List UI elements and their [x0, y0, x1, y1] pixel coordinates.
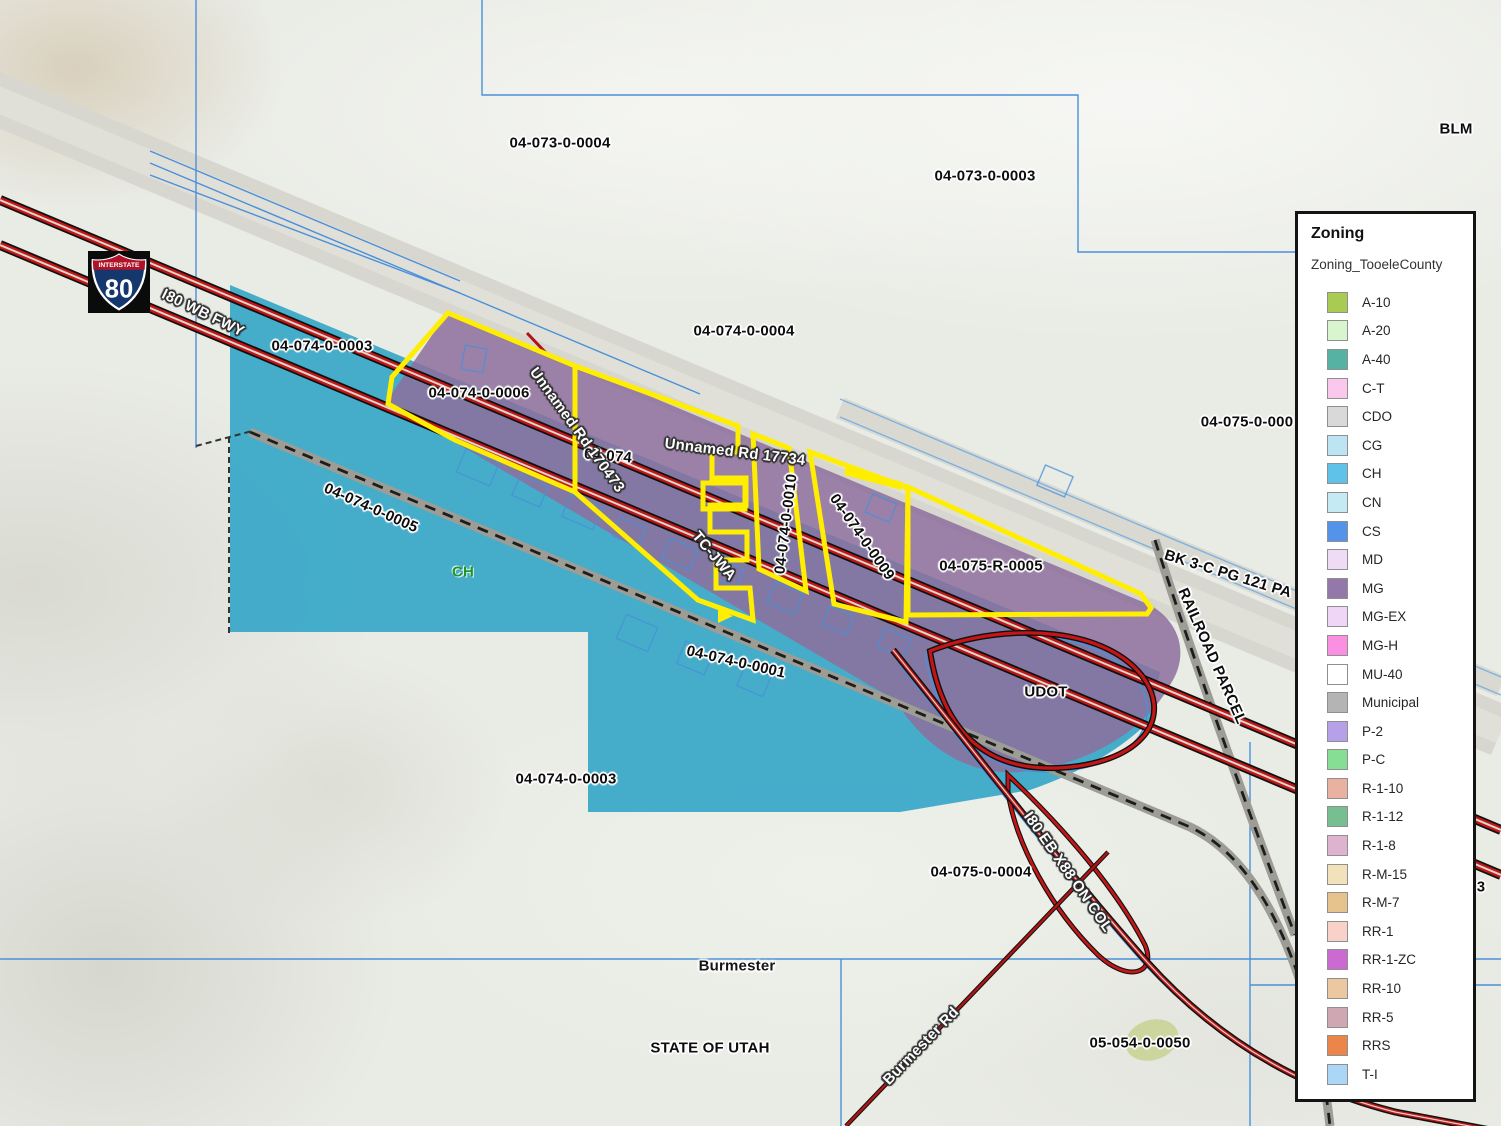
- legend-item-p-c: P-C: [1298, 746, 1473, 775]
- legend-swatch: [1327, 349, 1348, 370]
- legend-swatch: [1327, 521, 1348, 542]
- legend-item-label: MG-H: [1362, 638, 1398, 653]
- legend-swatch: [1327, 749, 1348, 770]
- map-feature-layer: [0, 0, 1501, 1126]
- legend-layer-name: Zoning_TooeleCounty: [1311, 257, 1473, 272]
- legend-swatch: [1327, 606, 1348, 627]
- legend-item-label: CS: [1362, 524, 1381, 539]
- legend-swatch: [1327, 864, 1348, 885]
- legend-item-label: CN: [1362, 495, 1382, 510]
- legend-item-mg-h: MG-H: [1298, 631, 1473, 660]
- legend-item-label: Municipal: [1362, 695, 1419, 710]
- legend-swatch: [1327, 635, 1348, 656]
- legend-item-rr-1-zc: RR-1-ZC: [1298, 946, 1473, 975]
- legend-swatch: [1327, 664, 1348, 685]
- legend-item-r-1-10: R-1-10: [1298, 774, 1473, 803]
- legend-item-cs: CS: [1298, 517, 1473, 546]
- legend-swatch: [1327, 463, 1348, 484]
- legend-item-a-20: A-20: [1298, 317, 1473, 346]
- legend-item-municipal: Municipal: [1298, 688, 1473, 717]
- legend-swatch: [1327, 921, 1348, 942]
- legend-item-label: CH: [1362, 466, 1382, 481]
- legend-item-label: P-2: [1362, 724, 1383, 739]
- legend-item-label: RR-5: [1362, 1010, 1394, 1025]
- legend-swatch: [1327, 978, 1348, 999]
- legend-swatch: [1327, 892, 1348, 913]
- legend-item-r-m-15: R-M-15: [1298, 860, 1473, 889]
- legend-item-a-10: A-10: [1298, 288, 1473, 317]
- legend-swatch: [1327, 378, 1348, 399]
- legend-item-label: A-40: [1362, 352, 1391, 367]
- legend-item-label: RR-1: [1362, 924, 1394, 939]
- legend-swatch: [1327, 1064, 1348, 1085]
- legend-item-r-m-7: R-M-7: [1298, 888, 1473, 917]
- legend-item-rr-5: RR-5: [1298, 1003, 1473, 1032]
- legend-swatch: [1327, 778, 1348, 799]
- legend-swatch: [1327, 1035, 1348, 1056]
- legend-item-rrs: RRS: [1298, 1031, 1473, 1060]
- legend-item-label: R-1-8: [1362, 838, 1396, 853]
- legend-item-label: MD: [1362, 552, 1383, 567]
- interstate-shield-icon: INTERSTATE 80: [91, 253, 147, 311]
- legend-item-r-1-8: R-1-8: [1298, 831, 1473, 860]
- legend-item-p-2: P-2: [1298, 717, 1473, 746]
- legend-item-label: C-T: [1362, 381, 1385, 396]
- legend-item-t-i: T-I: [1298, 1060, 1473, 1089]
- legend-item-label: MG: [1362, 581, 1384, 596]
- legend-item-label: P-C: [1362, 752, 1385, 767]
- shield-number-text: 80: [105, 276, 134, 304]
- legend-swatch: [1327, 949, 1348, 970]
- legend-swatch: [1327, 435, 1348, 456]
- legend-item-label: MG-EX: [1362, 609, 1406, 624]
- legend-swatch: [1327, 692, 1348, 713]
- legend-item-a-40: A-40: [1298, 345, 1473, 374]
- legend-item-mg-ex: MG-EX: [1298, 603, 1473, 632]
- legend-item-cn: CN: [1298, 488, 1473, 517]
- legend-item-rr-1: RR-1: [1298, 917, 1473, 946]
- legend-swatch: [1327, 320, 1348, 341]
- legend-item-label: CG: [1362, 438, 1382, 453]
- legend-swatch: [1327, 578, 1348, 599]
- legend-item-label: T-I: [1362, 1067, 1378, 1082]
- vegetation-patch: [1120, 1013, 1184, 1068]
- legend-item-ch: CH: [1298, 460, 1473, 489]
- legend-item-label: MU-40: [1362, 667, 1403, 682]
- legend-swatch: [1327, 835, 1348, 856]
- legend-swatch: [1327, 806, 1348, 827]
- legend-swatch: [1327, 406, 1348, 427]
- map-canvas[interactable]: 04-073-0-000404-073-0-0003BLM04-074-0-00…: [0, 0, 1501, 1126]
- legend-item-label: R-M-15: [1362, 867, 1407, 882]
- legend-item-label: RRS: [1362, 1038, 1391, 1053]
- legend-item-r-1-12: R-1-12: [1298, 803, 1473, 832]
- legend-item-label: RR-10: [1362, 981, 1401, 996]
- legend-item-label: R-1-12: [1362, 809, 1403, 824]
- legend-panel: Zoning Zoning_TooeleCounty A-10A-20A-40C…: [1295, 211, 1476, 1102]
- legend-item-label: CDO: [1362, 409, 1392, 424]
- legend-item-c-t: C-T: [1298, 374, 1473, 403]
- legend-item-label: A-20: [1362, 323, 1391, 338]
- legend-swatch: [1327, 1007, 1348, 1028]
- legend-swatch: [1327, 721, 1348, 742]
- legend-item-cg: CG: [1298, 431, 1473, 460]
- burmester-road: [846, 852, 1108, 1126]
- legend-item-label: R-M-7: [1362, 895, 1400, 910]
- legend-item-rr-10: RR-10: [1298, 974, 1473, 1003]
- legend-item-label: A-10: [1362, 295, 1391, 310]
- legend-swatch: [1327, 292, 1348, 313]
- legend-item-label: R-1-10: [1362, 781, 1403, 796]
- legend-item-md: MD: [1298, 545, 1473, 574]
- legend-item-label: RR-1-ZC: [1362, 952, 1416, 967]
- legend-swatch: [1327, 549, 1348, 570]
- legend-item-mu-40: MU-40: [1298, 660, 1473, 689]
- shield-top-text: INTERSTATE: [99, 262, 141, 269]
- legend-item-cdo: CDO: [1298, 402, 1473, 431]
- legend-item-list: A-10A-20A-40C-TCDOCGCHCNCSMDMGMG-EXMG-HM…: [1298, 288, 1473, 1089]
- legend-title: Zoning: [1311, 225, 1473, 243]
- interstate-80-shield: INTERSTATE 80: [88, 251, 150, 313]
- legend-item-mg: MG: [1298, 574, 1473, 603]
- legend-swatch: [1327, 492, 1348, 513]
